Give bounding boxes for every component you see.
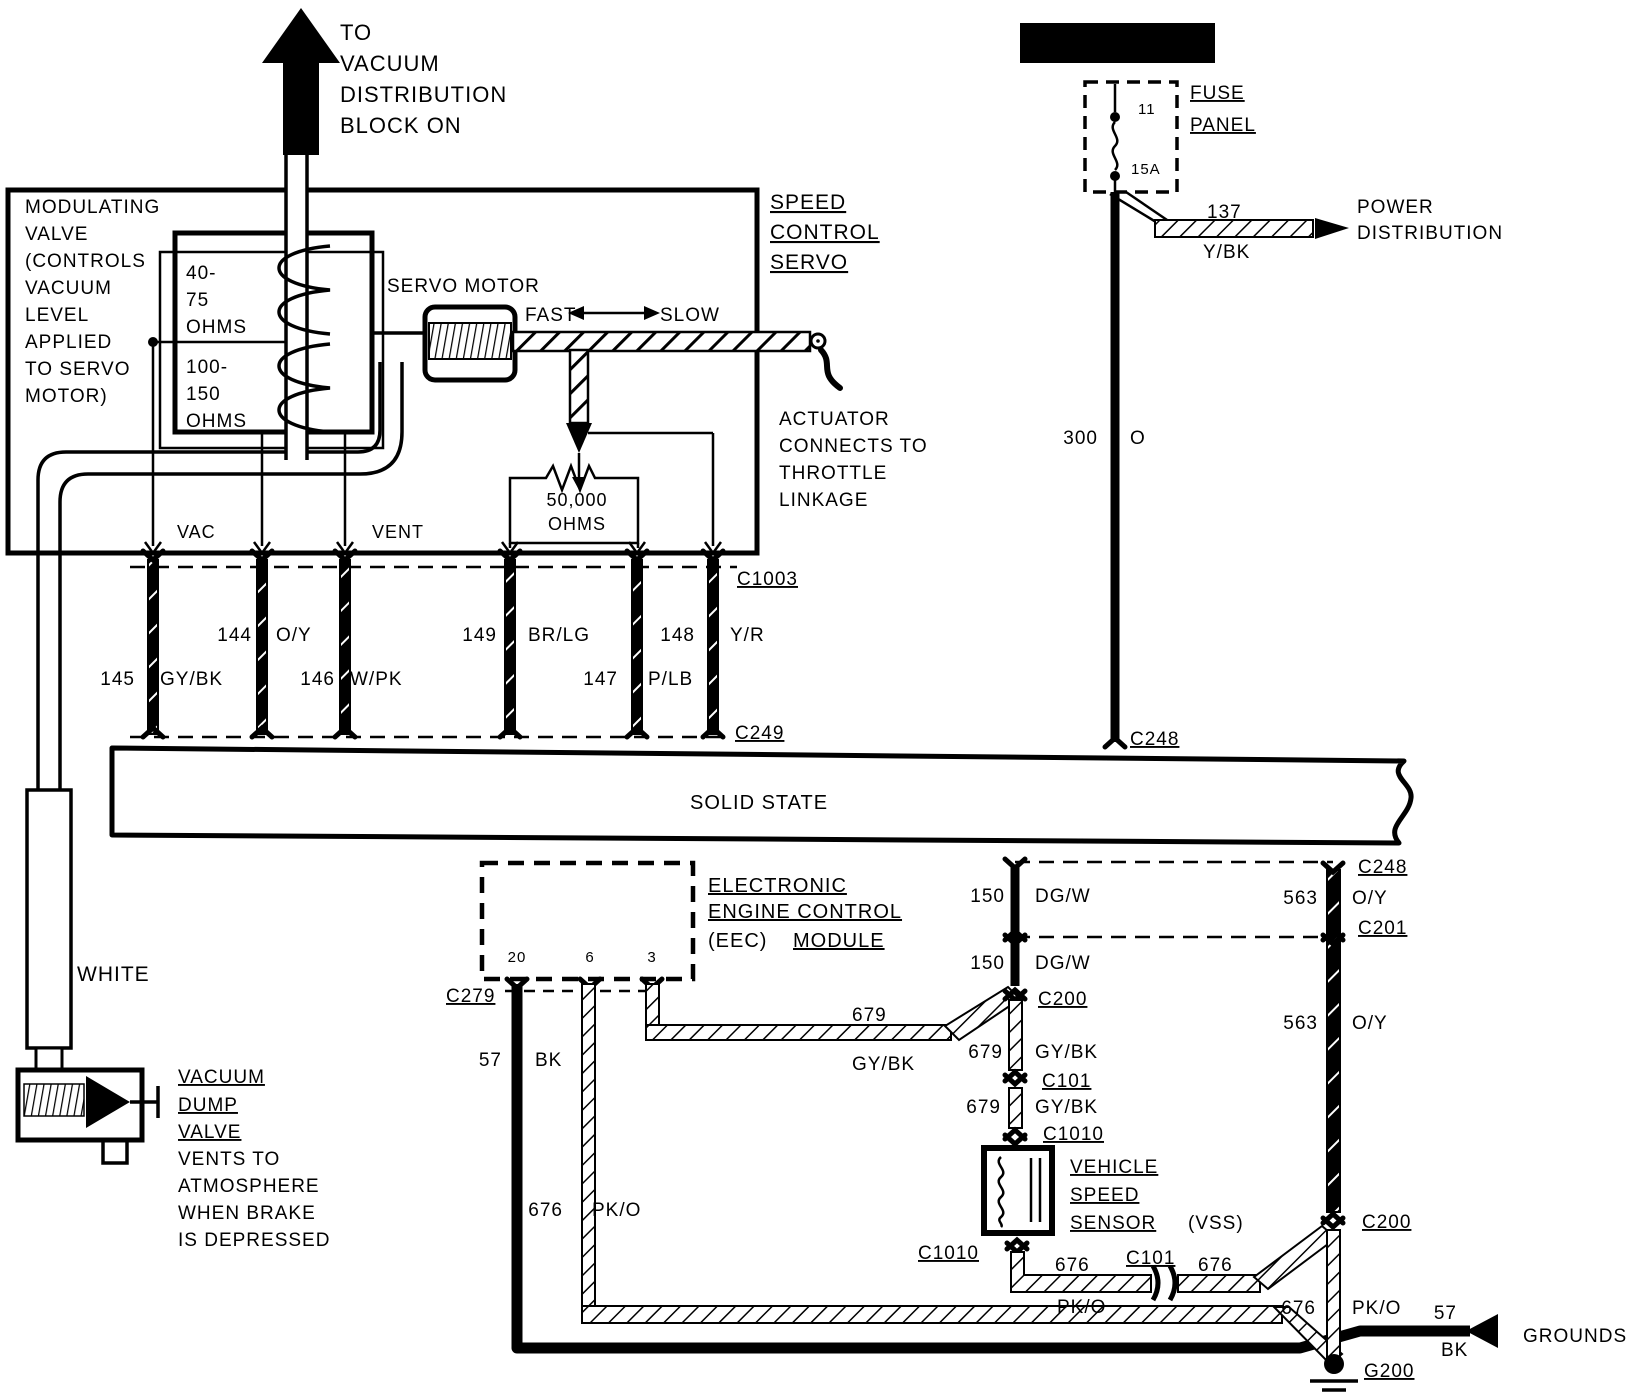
wire-679-color-1: GY/BK: [1035, 1042, 1098, 1063]
wire-147: 147: [583, 669, 618, 690]
wire-150-2: 150: [970, 953, 1005, 974]
fuse-element: [1113, 122, 1118, 170]
coil2-ohms: 100-150OHMS: [186, 357, 247, 432]
wire-57-color-a: BK: [535, 1050, 562, 1071]
vent-label: VENT: [372, 522, 424, 542]
vacuum-dump-3: VALVE: [178, 1122, 241, 1143]
wire-144-color: O/Y: [276, 625, 312, 646]
white-hose-tube: [27, 790, 71, 1048]
c248-mid-label: C248: [1358, 857, 1407, 878]
grounds-label: GROUNDS: [1523, 1326, 1627, 1347]
c279-label: C279: [446, 986, 495, 1007]
eec-module: [482, 863, 693, 991]
vss-label-1: VEHICLE: [1070, 1157, 1158, 1178]
grounds-arrow-icon: [1466, 1314, 1498, 1348]
fuse-cavity: 11: [1138, 101, 1156, 118]
c101-inline-left: [1153, 1266, 1158, 1300]
dump-valve-spring: [24, 1084, 84, 1116]
c200-2-label: C200: [1362, 1212, 1411, 1233]
hose-inner-wall: [38, 362, 380, 1045]
resistor-value: 50,000OHMS: [546, 490, 607, 534]
slow-label: SLOW: [660, 305, 720, 326]
actuator-hook: [821, 350, 840, 388]
wire-148-bar: [708, 560, 718, 734]
actuator-note: ACTUATORCONNECTS TOTHROTTLELINKAGE: [779, 409, 928, 511]
solid-state-label: SOLID STATE: [690, 792, 828, 814]
wire-57-color-b: BK: [1441, 1340, 1468, 1361]
wire-145: 145: [100, 669, 135, 690]
vacuum-dump-1: VACUUM: [178, 1067, 265, 1088]
wire-679-seg2: [1009, 1088, 1022, 1128]
wire-563-color-1: O/Y: [1352, 888, 1388, 909]
wiper-tip: [566, 423, 592, 453]
wire-679-drop: [646, 984, 659, 1030]
wire-676-d: 676: [528, 1200, 563, 1221]
servo-motor-winding: [429, 323, 511, 359]
wire-57-b: 57: [1434, 1303, 1457, 1324]
c101-2-label: C101: [1126, 1248, 1175, 1269]
wire-137: 137: [1207, 202, 1242, 223]
hot-in-acc-banner: HOT IN ACC OR RUN: [1033, 37, 1200, 54]
white-label: WHITE: [77, 963, 150, 986]
wire-145-color: GY/BK: [160, 669, 223, 690]
c200-1-label: C200: [1038, 989, 1087, 1010]
vacuum-dump-note: VENTS TOATMOSPHEREWHEN BRAKEIS DEPRESSED: [178, 1149, 330, 1251]
wire-679-seg1: [1009, 1000, 1022, 1070]
fuse-label: FUSE: [1190, 83, 1245, 104]
c101-inline-right: [1170, 1266, 1175, 1300]
c1003-label: C1003: [737, 569, 798, 590]
wire-563-2: 563: [1283, 1013, 1318, 1034]
wire-144: 144: [217, 625, 252, 646]
panel-label: PANEL: [1190, 115, 1256, 136]
wire-679-1: 679: [968, 1042, 1003, 1063]
speed-control-servo-label: SPEEDCONTROLSERVO: [770, 191, 880, 274]
wire-676-color-a: PK/O: [1057, 1297, 1106, 1318]
eec-label-2: ENGINE CONTROL: [708, 901, 902, 923]
wire-676-vertical: [582, 984, 595, 1310]
wire-149: 149: [462, 625, 497, 646]
wire-57-a: 57: [479, 1050, 502, 1071]
vss-label-2: SPEED: [1070, 1185, 1139, 1206]
wire-676-diagonal-up: [1254, 1226, 1336, 1289]
eec-label-4: MODULE: [793, 930, 885, 952]
vss-label-3: SENSOR: [1070, 1213, 1156, 1234]
lower-wiring: [517, 859, 1498, 1390]
wire-676-after-c101: [1178, 1275, 1260, 1292]
wire-676-c: 676: [1281, 1298, 1316, 1319]
vss-label-4: (VSS): [1188, 1213, 1244, 1234]
wire-676-color-c: PK/O: [1352, 1298, 1401, 1319]
wire-149-bar: [505, 560, 515, 734]
wire-679-h: 679: [852, 1005, 887, 1026]
fuse-terminal-bottom: [1110, 171, 1120, 181]
eec-label-1: ELECTRONIC: [708, 875, 847, 897]
wire-676-a: 676: [1055, 1255, 1090, 1276]
power-distribution-label: POWERDISTRIBUTION: [1357, 197, 1503, 244]
wire-679-horizontal: [646, 1025, 951, 1040]
fuse-terminal-top: [1110, 112, 1120, 122]
wire-144-bar: [257, 560, 267, 734]
wire-563-oy: [1327, 870, 1340, 1212]
wire-150-color-1: DG/W: [1035, 886, 1091, 907]
wire-563-color-2: O/Y: [1352, 1013, 1388, 1034]
c249-label: C249: [735, 723, 784, 744]
wire-300-color: O: [1130, 428, 1146, 449]
fuse-panel-assembly: [1020, 23, 1349, 747]
to-vacuum-note: TOVACUUMDISTRIBUTIONBLOCK ON: [340, 20, 507, 138]
slow-arrow-icon: [644, 306, 660, 320]
wire-150-1: 150: [970, 886, 1005, 907]
eec-label-3: (EEC): [708, 930, 767, 952]
vacuum-dump-2: DUMP: [178, 1095, 238, 1116]
vacuum-tube-fill: [286, 153, 307, 460]
wire-150-color-2: DG/W: [1035, 953, 1091, 974]
wire-146-bar: [340, 560, 350, 734]
eec-pin-3: 3: [647, 949, 656, 966]
c248-top-label: C248: [1130, 729, 1179, 750]
c101-1-label: C101: [1042, 1071, 1091, 1092]
fuse-rating: 15A: [1131, 161, 1161, 178]
actuator-pivot-dot: [816, 339, 820, 343]
power-distribution-arrow-icon: [1315, 218, 1349, 239]
eec-pin-20: 20: [508, 949, 527, 966]
wire-148: 148: [660, 625, 695, 646]
z-marker: Z: [291, 26, 308, 56]
wire-147-bar: [632, 560, 642, 734]
c201-label: C201: [1358, 918, 1407, 939]
c1010-1-label: C1010: [1043, 1124, 1104, 1145]
wire-146-color: W/PK: [350, 669, 403, 690]
wire-679-2: 679: [966, 1097, 1001, 1118]
diagram-canvas: TOVACUUMDISTRIBUTIONBLOCK ONZMODULATINGV…: [0, 0, 1650, 1392]
wire-676-horizontal: [582, 1306, 1282, 1323]
wire-149-color: BR/LG: [528, 625, 590, 646]
wire-676-to-ground: [1327, 1230, 1340, 1360]
wire-679-color-h: GY/BK: [852, 1054, 915, 1075]
wire-148-color: Y/R: [730, 625, 765, 646]
dump-valve-outlet: [103, 1140, 127, 1163]
wiper-arm: [570, 350, 588, 423]
wire-679-color-2: GY/BK: [1035, 1097, 1098, 1118]
coil1-ohms: 40-75OHMS: [186, 263, 247, 338]
g200-junction: [1324, 1354, 1344, 1374]
wire-137-color: Y/BK: [1203, 242, 1250, 263]
wire-676-color-d: PK/O: [592, 1200, 641, 1221]
g200-label: G200: [1364, 1361, 1414, 1382]
wire-146: 146: [300, 669, 335, 690]
vss-box: [984, 1148, 1052, 1233]
modulating-valve-note: MODULATINGVALVE(CONTROLSVACUUMLEVELAPPLI…: [25, 197, 160, 407]
actuator-rod: [513, 332, 810, 351]
c1010-2-label: C1010: [918, 1243, 979, 1264]
wire-676-b: 676: [1198, 1255, 1233, 1276]
servo-motor: [425, 307, 515, 380]
servo-motor-label: SERVO MOTOR: [387, 276, 540, 297]
wire-145-bar: [148, 560, 158, 734]
wire-563-1: 563: [1283, 888, 1318, 909]
fast-label: FAST: [525, 305, 577, 326]
wire-300: 300: [1063, 428, 1098, 449]
vac-label: VAC: [177, 522, 216, 542]
eec-pin-6: 6: [585, 949, 594, 966]
wiring-diagram-speed-control: { "colors": {"ink": "#000000", "paper": …: [0, 0, 1650, 1392]
wire-147-color: P/LB: [648, 669, 693, 690]
vacuum-arrow-shaft: [283, 61, 319, 155]
